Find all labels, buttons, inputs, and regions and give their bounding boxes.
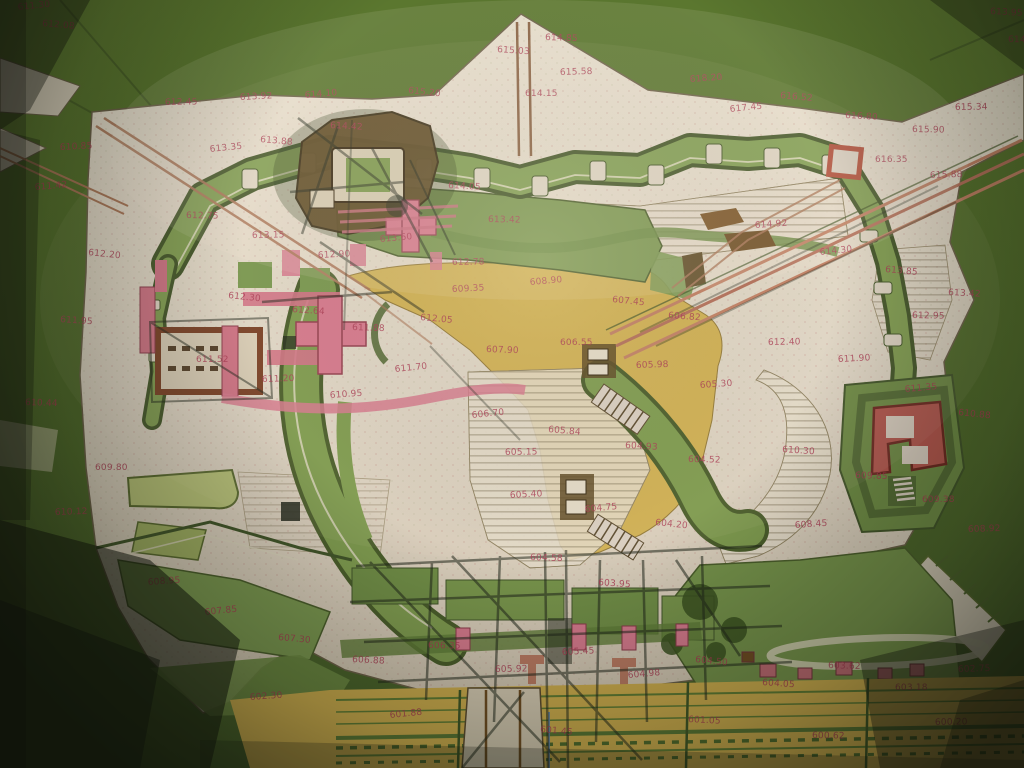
photo-lighting xyxy=(0,0,1024,768)
fortification-plan: 611.30612.08613.95614.22612.45613.92614.… xyxy=(0,0,1024,768)
photographed-map: 611.30612.08613.95614.22612.45613.92614.… xyxy=(0,0,1024,768)
